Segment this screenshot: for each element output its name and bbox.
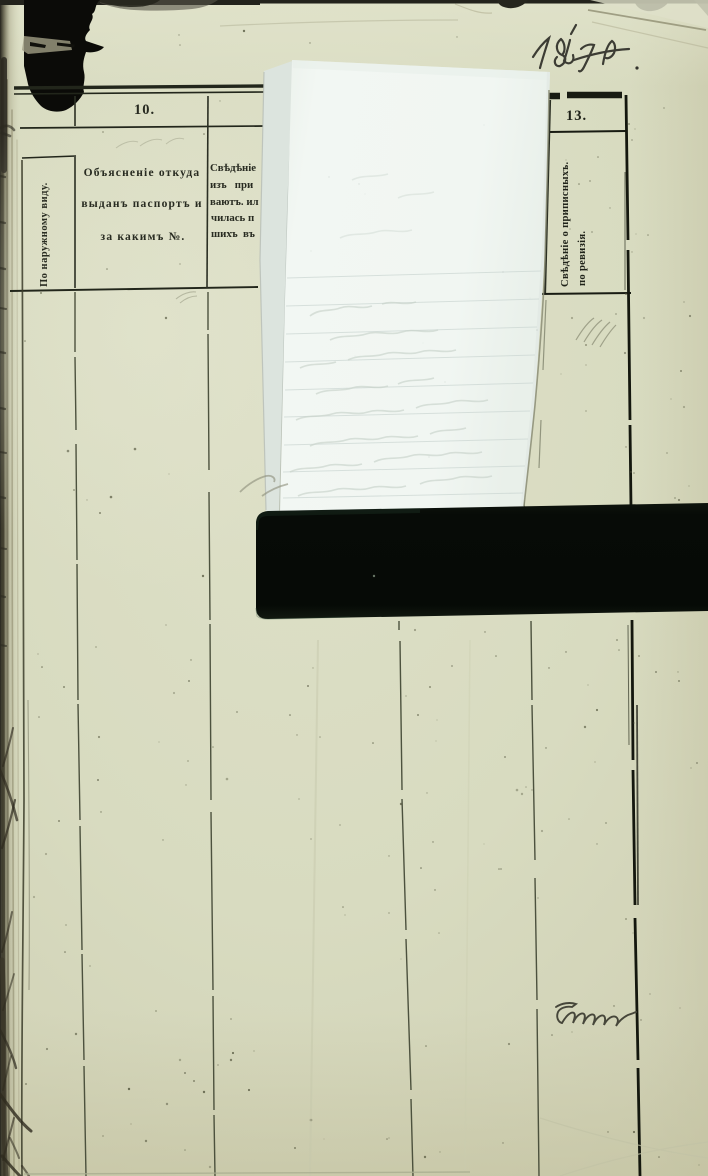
svg-text:выданъ паспортъ и: выданъ паспортъ и xyxy=(81,198,202,210)
svg-text:Свѣдѣніе о приписныхъ.: Свѣдѣніе о приписныхъ. xyxy=(560,161,571,287)
svg-text:изъ при: изъ при xyxy=(210,179,253,191)
svg-text:Объясненіе откуда: Объясненіе откуда xyxy=(84,167,201,179)
svg-text:шихъ въ: шихъ въ xyxy=(211,228,256,240)
svg-text:10.: 10. xyxy=(134,102,155,118)
svg-text:Свѣдѣніе: Свѣдѣніе xyxy=(210,162,256,174)
svg-text:13.: 13. xyxy=(566,108,587,124)
svg-text:за какимъ №.: за какимъ №. xyxy=(101,231,186,243)
svg-text:чилась п: чилась п xyxy=(211,212,254,224)
svg-text:по ревизія.: по ревизія. xyxy=(577,231,588,286)
svg-text:По наружному виду.: По наружному виду. xyxy=(39,182,50,287)
svg-text:ваютъ. ил: ваютъ. ил xyxy=(210,196,259,208)
